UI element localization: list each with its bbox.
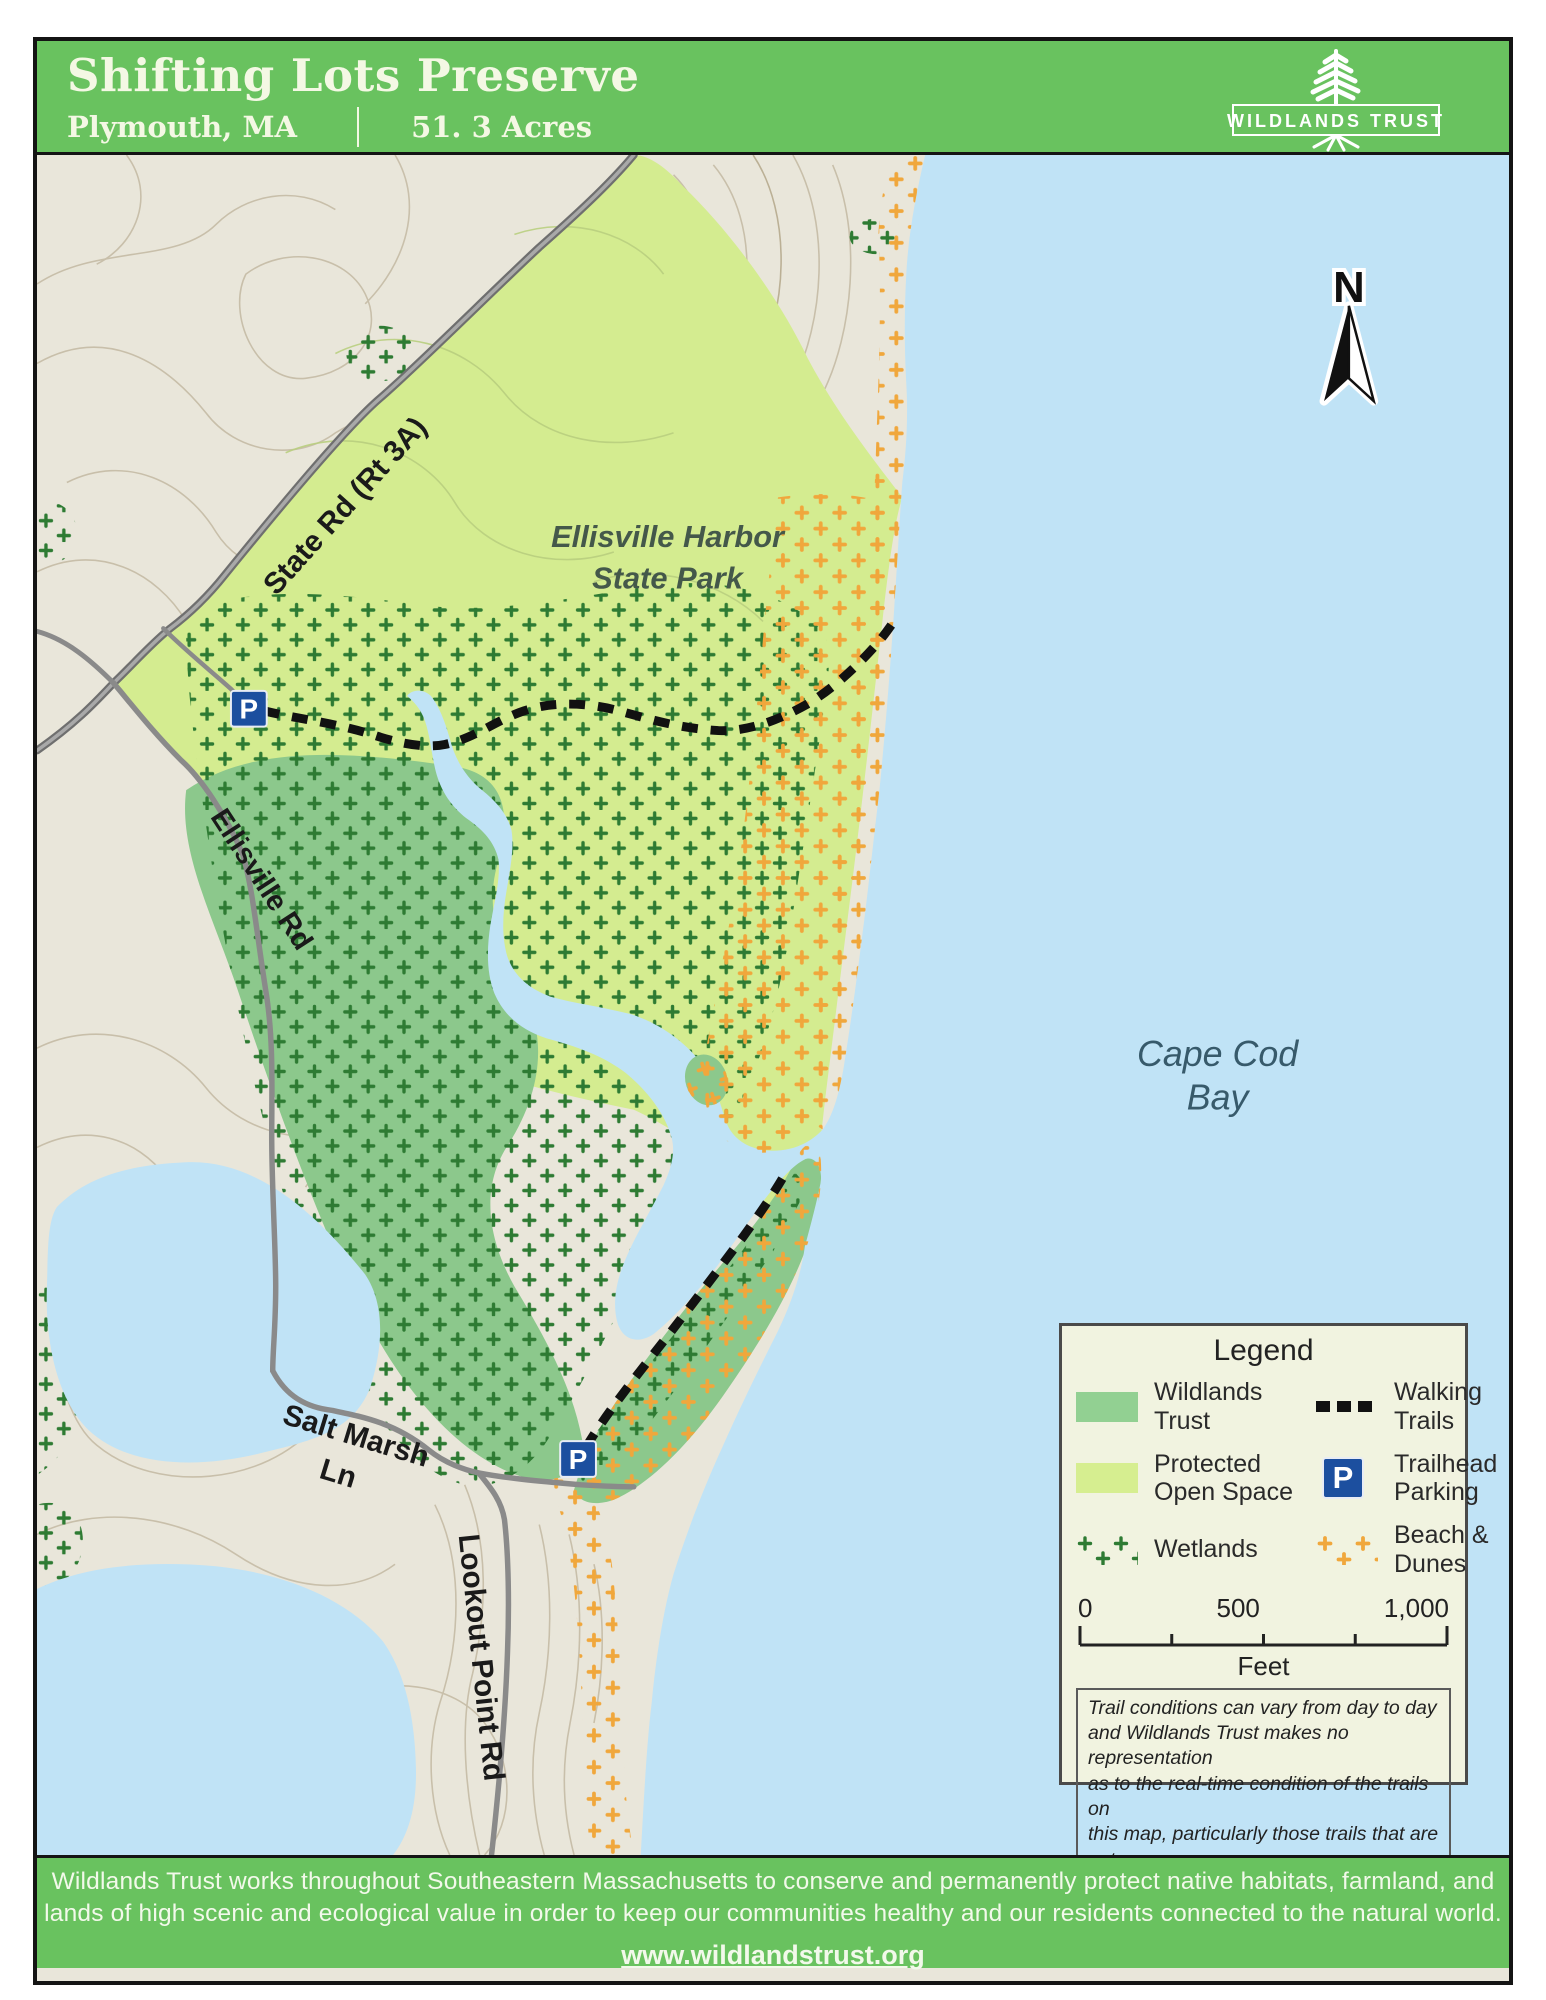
legend-label-dunes: Beach &Dunes <box>1394 1521 1509 1579</box>
scale-unit: Feet <box>1076 1651 1451 1682</box>
footer-mission-line1: Wildlands Trust works throughout Southea… <box>37 1858 1509 1896</box>
map-area: P P N N State Rd (Rt 3A) Ellisville Rd S… <box>37 155 1509 1855</box>
trailhead-parking-north: P <box>231 691 267 727</box>
walking-trails-symbol <box>1316 1401 1380 1412</box>
legend-label-wetlands: Wetlands <box>1154 1535 1302 1564</box>
page-title: Shifting Lots Preserve <box>67 49 639 102</box>
parking-icon: P <box>569 1444 588 1475</box>
bay-label-1: Cape Cod <box>1137 1034 1299 1074</box>
header-subtitle: Plymouth, MA 51. 3 Acres <box>67 107 592 147</box>
legend-label-walking: WalkingTrails <box>1394 1378 1509 1436</box>
north-label: N <box>1333 263 1365 312</box>
scale-bar: 0 500 1,000 Feet <box>1076 1593 1451 1682</box>
dunes-swatch <box>1316 1535 1378 1565</box>
disclaimer: Trail conditions can vary from day to da… <box>1076 1688 1451 1856</box>
scale-500: 500 <box>1217 1593 1260 1624</box>
scale-bar-graphic <box>1076 1624 1451 1648</box>
legend-label-trailhead: TrailheadParking <box>1394 1450 1509 1508</box>
footer: Wildlands Trust works throughout Southea… <box>37 1855 1509 1968</box>
wetlands-swatch <box>1076 1535 1138 1565</box>
logo-text: Wildlands Trust <box>1227 111 1445 131</box>
state-park-label-1: Ellisville Harbor <box>551 519 786 554</box>
map-sheet: Shifting Lots Preserve Plymouth, MA 51. … <box>33 37 1513 1985</box>
trailhead-parking-south: P <box>560 1441 596 1477</box>
legend-label-protected: ProtectedOpen Space <box>1154 1450 1302 1508</box>
bay-label-2: Bay <box>1187 1078 1251 1118</box>
parking-icon: P <box>240 694 259 725</box>
protected-swatch <box>1076 1463 1138 1493</box>
legend-items: WildlandsTrust WalkingTrails ProtectedOp… <box>1076 1378 1451 1579</box>
trailhead-parking-symbol: P <box>1322 1457 1364 1499</box>
wildlands-trust-logo: Wildlands Trust <box>1211 43 1461 153</box>
scale-1000: 1,000 <box>1384 1593 1449 1624</box>
acreage-label: 51. 3 Acres <box>411 110 592 144</box>
location-label: Plymouth, MA <box>67 110 297 144</box>
legend: Legend WildlandsTrust WalkingTrails Prot… <box>1059 1323 1468 1785</box>
header-divider <box>357 107 359 147</box>
state-park-label-2: State Park <box>592 561 745 596</box>
legend-title: Legend <box>1076 1334 1451 1368</box>
scale-0: 0 <box>1078 1593 1092 1624</box>
footer-mission-line2: lands of high scenic and ecological valu… <box>37 1896 1509 1928</box>
website-link[interactable]: www.wildlandstrust.org <box>37 1928 1509 1971</box>
header: Shifting Lots Preserve Plymouth, MA 51. … <box>37 41 1509 155</box>
legend-label-wildlands: WildlandsTrust <box>1154 1378 1302 1436</box>
wildlands-swatch <box>1076 1392 1138 1422</box>
